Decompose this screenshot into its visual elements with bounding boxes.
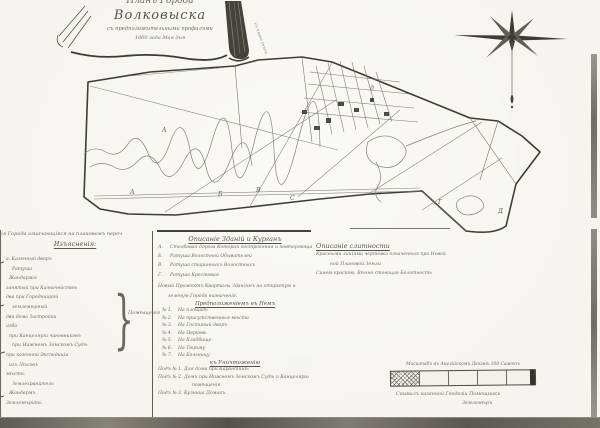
item-text: На присутственныя мѣста [178,316,249,321]
lettered-item: А.Столбовая дорога Которая построенная и… [158,243,312,252]
legend-item: мѣстн. [6,370,124,380]
item-text: Ратуша старинныхъ Волостныхъ [170,263,255,268]
legend-item: Ратуша [6,265,124,275]
map-title-line1: Планъ Города [55,0,265,6]
brace-group-label: Помѣщенія [128,310,160,316]
binding-tick [0,261,4,263]
scale-bar-hatched-segment [391,371,419,385]
item-text: Кузница Домикъ. [184,391,227,396]
map-internal-borders [235,57,516,231]
item-number: № 5. [158,337,178,345]
lettered-item: Б.Ратуша Волостной Обывателей [158,252,312,261]
legend-middle-header: Описаніе Зданій и Курганъ [188,235,281,243]
item-key: Б. [158,252,170,261]
section-label: Д [497,208,503,215]
sheet-border-segment [157,230,311,232]
binding-tick [0,395,4,397]
legend-item: Землемѣрить [6,399,124,409]
item-number: Подъ № 1. [158,366,184,374]
map-title-line2: Волковыска [55,8,265,23]
demolition-item: Подъ № 1.Для дома при Карантинѣ [158,366,312,374]
section-label: А [161,127,167,134]
map-title-line4: 1860 года Мая дня [75,35,245,41]
roads [90,63,502,212]
legend-middle: Описаніе Зданій и Курганъ А.Столбовая до… [158,235,312,398]
binding-tick [1,351,5,353]
item-text: Ратуша Волостной Обывателей [170,254,252,259]
scale-bar [390,369,536,387]
item-key: А. [158,243,170,252]
item-text: Столбовая дорога Которая построенная и п… [170,245,312,250]
scale-tick [506,371,507,385]
legend-item: занятый при Казначействѣ [6,284,124,294]
numbered-item: № 2.На присутственныя мѣста [158,315,312,323]
compass-cardinal-points [454,10,568,52]
surveyor-signature-line1: Снималъ казенной Геодезіи Помощникъ [396,392,500,397]
scale-tick [419,371,420,385]
item-text: На Больницу [178,353,210,358]
item-number: № 2. [158,315,178,323]
legend-item: а. Казенный дворъ [6,255,124,265]
scale-caption: Масштабъ въ Англійскомъ Дюймѣ 100 Саженъ [390,362,536,367]
legend-item: при Канцеляріи чиновниковъ [6,332,124,342]
legend-left-top-line: нія Города означающіяся на плановомъ пер… [0,231,154,237]
demolition-subheader: къ Уничтоженію [210,360,261,366]
map-outer-boundary [84,57,540,232]
legend-item: два при Городницкой [6,293,124,303]
scan-right-edge [591,229,597,417]
legend-right-header: Описаніе слитности [316,242,390,250]
lettered-item: Г.Ратуша Крестовая [158,271,312,280]
demolition-item: Подъ № 3.Кузница Домикъ. [158,390,312,398]
section-label: Б [217,191,223,198]
item-text: Для дома при Карантинѣ [184,367,249,372]
legend-item: Землехранитель [6,380,124,390]
item-number: Подъ № 2. [158,374,184,382]
numbered-item: № 5.На Кладбище [158,337,312,345]
scanned-map-sheet: { "page": { "paper_color": "#f5f4f0", "i… [0,0,600,427]
legend-item: при Нижнемъ Земскомъ Судѣ [6,341,124,351]
item-number: № 6. [158,345,178,353]
town-plan-map: А А Б В С Г Д д [70,50,548,242]
item-text: Домъ при Нижнемъ Земскомъ Судѣ и Канцеля… [184,375,309,380]
scale-bar-end-cap [530,369,535,385]
legend-right: Описаніе слитности Красными линіями черт… [316,242,480,279]
section-label: Г [437,199,443,206]
legend-item: при казенной Экспедиціи [6,351,124,361]
scale-tick [448,371,449,385]
item-number: № 1. [158,307,178,315]
project-paragraph-line2: зеленую Города назначенія. [158,293,312,301]
item-number: № 4. [158,330,178,338]
numbered-item: № 1.На площадь [158,307,312,315]
scan-right-edge [591,54,597,218]
item-text: На площадь [178,308,208,313]
item-text: На Церковь [178,331,207,336]
section-label: В [255,187,261,194]
color-note-line2: ной Плановой Земли [316,260,480,270]
legend-column-divider [152,231,153,417]
legend-item: Жандармъ [6,389,124,399]
item-number: № 3. [158,322,178,330]
numbered-item: № 4.На Церковь [158,330,312,338]
project-paragraph-line1: Новый Прожектъ Кварталы Зданіямъ на откр… [158,283,312,291]
lettered-item: В.Ратуша старинныхъ Волостныхъ [158,261,312,270]
numbered-item: № 3.На Гостиный дворъ [158,322,312,330]
item-text: На Гостиный дворъ [178,323,227,328]
demolition-item-continuation: помѣщенія. [158,382,312,390]
item-text: На Тюрьму [178,346,205,351]
item-number: Подъ № 3. [158,390,184,398]
color-note-line1: Красными линіями чертежа означенныя при … [316,250,480,260]
legend-item: изъ Лѣсовъ [6,361,124,371]
section-label: д [370,85,374,92]
scan-left-edge [0,230,1,417]
numbered-item: № 6.На Тюрьму [158,345,312,353]
section-label: С [290,195,295,202]
color-note-line3: Синею краскою, Вѣчно стоющая Болотность [316,269,480,279]
map-title-line3: съ предположительными профилями [55,26,265,32]
scale-tick [477,371,478,385]
sheet-border-segment [350,228,450,229]
demolition-item: Подъ № 2.Домъ при Нижнемъ Земскомъ Судѣ … [158,374,312,382]
legend-item: землемѣрный [6,303,124,313]
binding-tick [0,304,4,306]
item-key: Г. [158,271,170,280]
legend-left-list: а. Казенный дворъ Ратуша Жандармія занят… [6,255,124,409]
grouping-brace: } [114,282,134,356]
legend-left-header: Изъясненія: [0,240,150,248]
item-number: № 7. [158,352,178,360]
item-text: Ратуша Крестовая [170,273,219,278]
legend-item: Жандармія [6,274,124,284]
legend-item: изба [6,322,124,332]
town-street-grid [300,61,418,134]
section-label: А [129,189,135,196]
item-text: На Кладбище [178,338,211,343]
scan-bottom-edge [0,417,600,428]
surveyor-signature-line2: Землемѣръ [462,401,492,406]
legend-item: два дома Застройки [6,313,124,323]
numbered-item: № 7.На Больницу [158,352,312,360]
item-key: В. [158,261,170,270]
